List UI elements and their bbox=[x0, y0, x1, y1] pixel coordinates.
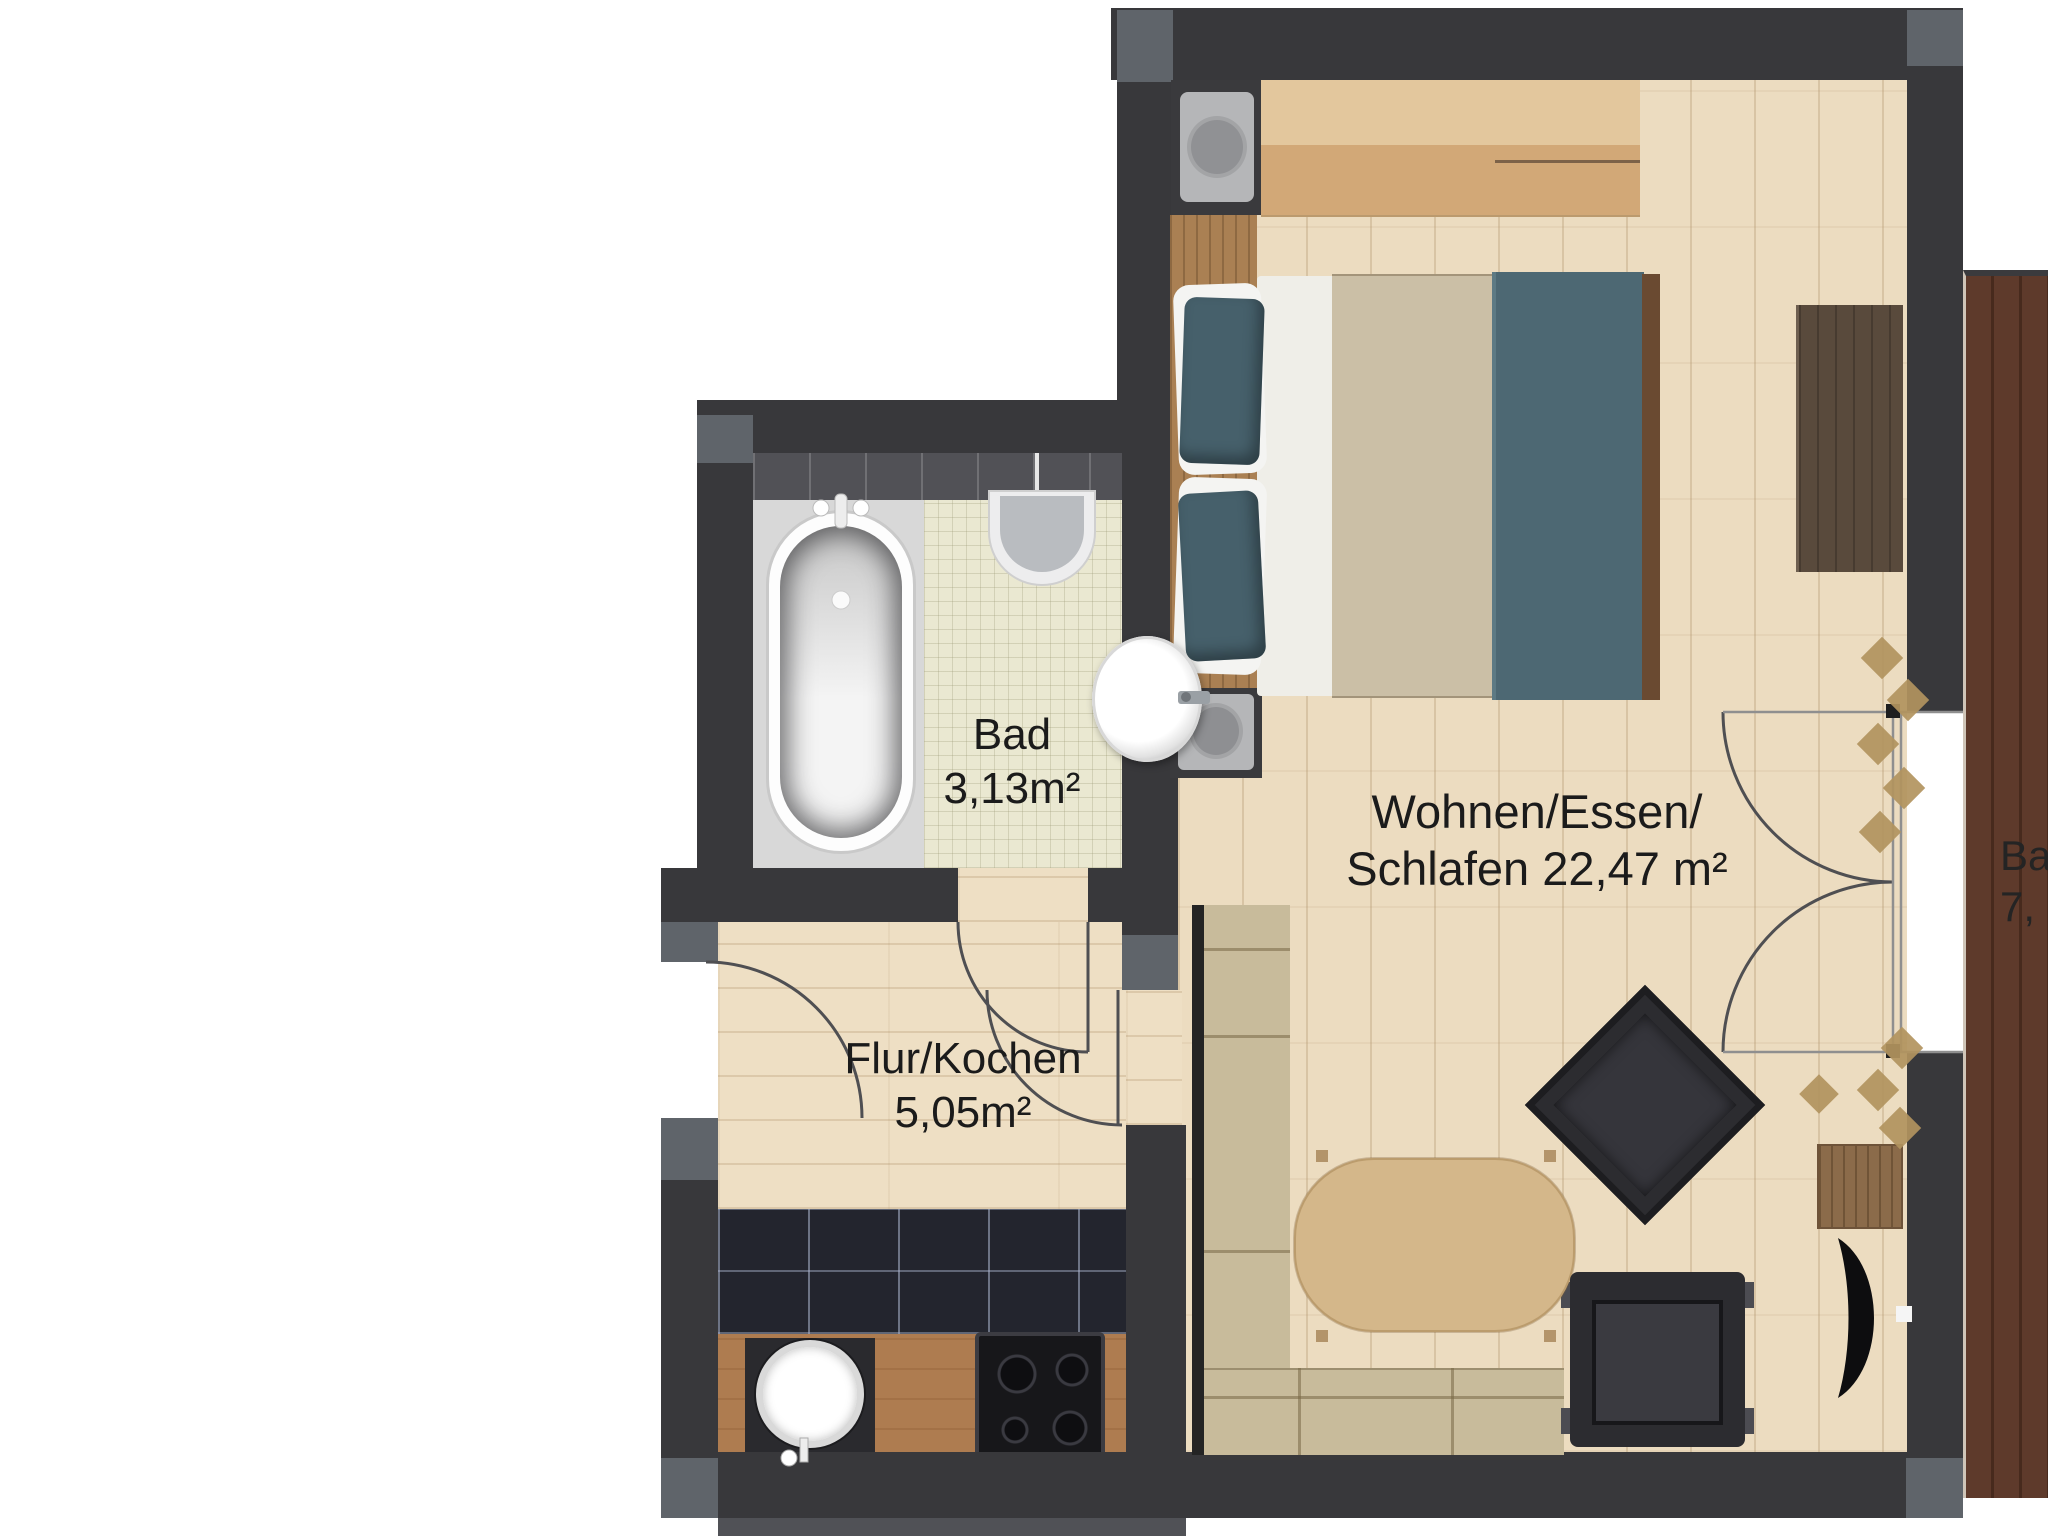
bed-pillow-teal-2 bbox=[1178, 490, 1267, 662]
tv-cabinet bbox=[1817, 1144, 1903, 1229]
room-area: Schlafen 22,47 m² bbox=[1287, 840, 1787, 897]
wall-accent-entry bbox=[661, 1118, 718, 1180]
sofa-seam bbox=[1298, 1368, 1301, 1455]
room-name: Flur/Kochen bbox=[763, 1032, 1163, 1086]
kitchen-sink-basin bbox=[756, 1340, 864, 1448]
wall-top bbox=[1111, 8, 1963, 80]
top-sideboard bbox=[1261, 80, 1640, 217]
sofa-seam bbox=[1204, 1396, 1564, 1399]
wall-socket-dot bbox=[1896, 1306, 1912, 1322]
armchair-rect bbox=[1570, 1272, 1745, 1447]
bed-pillow-teal-1 bbox=[1179, 297, 1265, 466]
armchair-arm-tick bbox=[1744, 1282, 1754, 1308]
bed-blanket-teal bbox=[1492, 272, 1644, 700]
wall-accent-hall-left bbox=[661, 922, 718, 962]
wall-bottom bbox=[661, 1452, 1963, 1518]
table-leg bbox=[1544, 1330, 1556, 1342]
bed-blanket-beige bbox=[1332, 274, 1497, 698]
label-bathroom: Bad 3,13m² bbox=[862, 708, 1162, 815]
kitchen-dark-tiles bbox=[718, 1209, 1126, 1334]
bath-door-floor-strip bbox=[958, 868, 1088, 922]
wall-bathroom-left bbox=[697, 400, 753, 922]
wall-right-lower bbox=[1907, 1052, 1963, 1518]
vent-circle-top bbox=[1187, 116, 1247, 178]
bed-sheet-strip bbox=[1257, 276, 1337, 696]
table-leg bbox=[1544, 1150, 1556, 1162]
sofa-seam bbox=[1204, 1035, 1290, 1038]
stove bbox=[975, 1332, 1105, 1458]
bed-frame-edge bbox=[1642, 274, 1660, 700]
sofa-seam bbox=[1204, 948, 1290, 951]
room-area: 5,05m² bbox=[763, 1086, 1163, 1140]
label-hall-kitchen: Flur/Kochen 5,05m² bbox=[763, 1032, 1163, 1139]
wall-accent-bath bbox=[697, 415, 753, 463]
wall-accent-top-left bbox=[1117, 10, 1173, 82]
wall-hall-right-lower bbox=[1126, 1125, 1186, 1460]
armchair-rect-cushion bbox=[1592, 1300, 1723, 1425]
label-balcony: Ba 7, bbox=[2000, 830, 2048, 932]
room-name: Bad bbox=[862, 708, 1162, 762]
dining-table bbox=[1294, 1158, 1575, 1332]
room-area: 3,13m² bbox=[862, 762, 1162, 816]
sofa-seam bbox=[1204, 1250, 1290, 1253]
wall-accent-bottom-right bbox=[1906, 1458, 1963, 1518]
wall-accent-top-right bbox=[1907, 10, 1963, 66]
sofa-seam bbox=[1451, 1368, 1454, 1455]
table-leg bbox=[1316, 1150, 1328, 1162]
armchair-arm-tick bbox=[1744, 1408, 1754, 1434]
wall-bathroom-bottom bbox=[661, 868, 958, 922]
sofa-horizontal-seat bbox=[1204, 1368, 1564, 1455]
room-name: Wohnen/Essen/ bbox=[1287, 783, 1787, 840]
room-area: 7, bbox=[2000, 881, 2048, 932]
wall-bathroom-top bbox=[697, 400, 1178, 453]
label-living-room: Wohnen/Essen/ Schlafen 22,47 m² bbox=[1287, 783, 1787, 898]
table-leg bbox=[1316, 1330, 1328, 1342]
wardrobe bbox=[1796, 305, 1903, 572]
wall-shadow-below-kitchen bbox=[718, 1518, 1186, 1536]
wall-accent-hall-right bbox=[1122, 935, 1178, 990]
floor-plan: Bad 3,13m² Flur/Kochen 5,05m² Wohnen/Ess… bbox=[0, 0, 2048, 1538]
wall-accent-bottom-left bbox=[661, 1458, 718, 1518]
wall-right-upper bbox=[1907, 8, 1963, 712]
top-sideboard-handle-line bbox=[1495, 160, 1640, 163]
room-name: Ba bbox=[2000, 830, 2048, 881]
